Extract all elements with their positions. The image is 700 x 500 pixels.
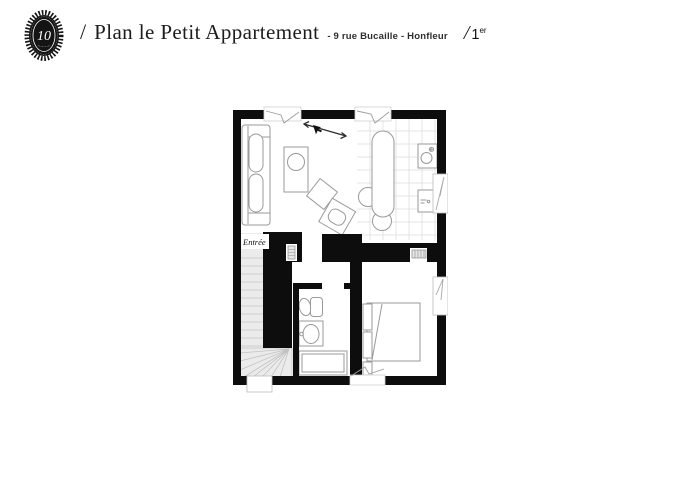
pillow xyxy=(363,332,372,358)
kitchen-island xyxy=(372,131,394,217)
partition-bathroom-left xyxy=(293,283,299,377)
door-bedroom xyxy=(433,277,448,315)
toilet xyxy=(298,297,323,316)
partition-hall xyxy=(322,234,362,262)
shower-tray xyxy=(299,351,347,375)
floor-plan: Entrée xyxy=(233,106,448,394)
radiator-niche-entry xyxy=(286,244,297,261)
bedroom-furniture xyxy=(363,303,420,375)
partition-bathroom-right xyxy=(350,262,362,377)
entrance-label-text: Entrée xyxy=(242,237,266,247)
floor-number: 1 xyxy=(471,27,479,43)
floor-slash: / xyxy=(464,22,470,45)
brand-logo-icon: 10 xyxy=(24,9,64,64)
double-arrow-annotation-icon xyxy=(304,122,346,139)
bathroom-fixtures xyxy=(298,297,347,375)
measure-annotation xyxy=(304,122,346,139)
mouse-pointer-icon xyxy=(313,125,322,134)
window-top-left xyxy=(264,107,301,123)
bed-mattress xyxy=(367,303,420,361)
address-subtitle: - 9 rue Bucaille - Honfleur xyxy=(327,31,447,42)
kitchen-tiled-floor xyxy=(357,118,437,240)
entrance-label: Entrée xyxy=(241,234,269,249)
pillow xyxy=(363,304,372,330)
bathroom-sink xyxy=(299,321,323,346)
cooktop xyxy=(418,144,437,168)
door-entry xyxy=(247,376,272,392)
partition-stair xyxy=(263,262,292,348)
radiator-niche-bedroom xyxy=(410,248,427,262)
page-title: Plan le Petit Appartement xyxy=(94,20,319,45)
page: 10 / Plan le Petit Appartement - 9 rue B… xyxy=(0,0,700,500)
logo-monogram: 10 xyxy=(37,29,51,44)
floor-suffix: er xyxy=(479,26,486,35)
floor-indicator: / 1 er xyxy=(464,22,487,45)
door-kitchen xyxy=(433,174,448,213)
window-top-right xyxy=(355,107,391,123)
side-table xyxy=(284,147,308,192)
title-slash: / xyxy=(80,19,86,45)
living-room-furniture xyxy=(242,125,356,235)
sofa xyxy=(242,125,270,225)
header-titlebar: / Plan le Petit Appartement - 9 rue Buca… xyxy=(80,0,487,64)
